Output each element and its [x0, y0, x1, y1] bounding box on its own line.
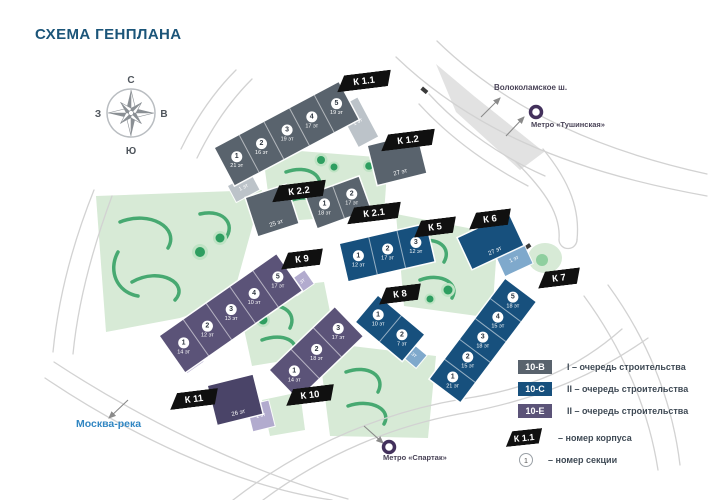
annex-floors-label: 1 эт [238, 183, 249, 193]
legend: 10-В I – очередь строительства 10-С II –… [505, 360, 688, 475]
section-number-badge: 3 [333, 323, 344, 334]
section-number-badge: 4 [492, 311, 503, 322]
section-number-badge: 4 [306, 111, 317, 122]
highway-label: Волоколамское ш. [494, 83, 567, 92]
section-number-badge: 1 [447, 372, 458, 383]
legend-text-phase3: II – очередь строительства [567, 406, 688, 416]
section-floors-label: 12 эт [201, 333, 214, 339]
section-floors-label: 16 эт [255, 150, 268, 156]
section-number-badge: 1 [289, 365, 300, 376]
section-floors-label: 19 эт [280, 137, 293, 143]
legend-row-section: 1 – номер секции [505, 453, 688, 467]
section-number-badge: 2 [396, 329, 407, 340]
section-number-badge: 1 [373, 309, 384, 320]
compass-west-label: З [95, 109, 101, 120]
section-number-badge: 1 [319, 198, 330, 209]
section-floors-label: 18 эт [476, 344, 489, 350]
legend-text-phase2: II – очередь строительства [567, 384, 688, 394]
section-floors-label: 18 эт [318, 210, 331, 216]
section-floors-label: 15 эт [461, 364, 474, 370]
compass-north-label: С [127, 75, 134, 86]
legend-korpus-tag: К 1.1 [504, 428, 543, 447]
section-floors-label: 10 эт [372, 321, 385, 327]
section-number-badge: 3 [281, 125, 292, 136]
genplan-scheme: С Ю З В СХЕМА ГЕНПЛАНА Волоколамское ш. … [0, 0, 708, 500]
legend-section-text: – номер секции [548, 455, 617, 465]
section-floors-label: 18 эт [507, 303, 520, 309]
section-floors-label: 19 эт [330, 110, 343, 116]
legend-row-korpus: К 1.1 – номер корпуса [505, 430, 688, 445]
section-floors-label: 14 эт [177, 349, 190, 355]
compass-south-label: Ю [126, 146, 136, 157]
legend-korpus-text: – номер корпуса [558, 433, 632, 443]
metro-tushinskaya-icon[interactable] [531, 107, 542, 118]
metro-tushinskaya-label: Метро «Тушинская» [531, 120, 605, 129]
section-number-badge: 1 [353, 250, 364, 261]
section-number-badge: 5 [508, 291, 519, 302]
section-number-badge: 3 [411, 237, 422, 248]
river-label: Москва-река [76, 418, 141, 430]
legend-row-phase3: 10-Е II – очередь строительства [505, 404, 688, 418]
metro-spartak-label: Метро «Спартак» [383, 453, 447, 462]
section-floors-label: 21 эт [446, 384, 459, 390]
section-number-badge: 5 [272, 272, 283, 283]
section-floors-label: 15 эт [492, 323, 505, 329]
building-floors-label: 26 эт [231, 409, 246, 418]
compass-rose: С Ю З В [95, 75, 168, 157]
section-floors-label: 12 эт [410, 249, 423, 255]
section-floors-label: 10 эт [248, 300, 261, 306]
section-floors-label: 7 эт [397, 341, 407, 347]
section-number-badge: 4 [249, 288, 260, 299]
compass-east-label: В [160, 109, 167, 120]
section-floors-label: 14 эт [288, 377, 301, 383]
legend-row-phase2: 10-С II – очередь строительства [505, 382, 688, 396]
section-number-badge: 3 [225, 304, 236, 315]
section-number-badge: 2 [256, 138, 267, 149]
section-number-badge: 2 [462, 352, 473, 363]
legend-text-phase1: I – очередь строительства [567, 362, 686, 372]
section-floors-label: 17 эт [305, 123, 318, 129]
section-floors-label: 17 эт [345, 201, 358, 207]
legend-section-badge: 1 [519, 453, 533, 467]
section-floors-label: 13 эт [224, 316, 237, 322]
section-floors-label: 12 эт [352, 262, 365, 268]
section-floors-label: 17 эт [332, 335, 345, 341]
section-floors-label: 21 эт [230, 163, 243, 169]
section-floors-label: 18 эт [310, 356, 323, 362]
legend-row-phase1: 10-В I – очередь строительства [505, 360, 688, 374]
section-number-badge: 2 [311, 344, 322, 355]
section-number-badge: 2 [202, 321, 213, 332]
section-number-badge: 2 [346, 189, 357, 200]
section-number-badge: 2 [382, 244, 393, 255]
section-number-badge: 3 [477, 332, 488, 343]
legend-swatch-10s: 10-С [518, 382, 552, 396]
metro-spartak-icon[interactable] [384, 442, 395, 453]
car-icon [420, 87, 428, 95]
section-number-badge: 5 [331, 98, 342, 109]
section-floors-label: 17 эт [381, 256, 394, 262]
legend-swatch-10v: 10-В [518, 360, 552, 374]
building-floors-label: 25 эт [269, 219, 284, 229]
section-number-badge: 1 [231, 151, 242, 162]
legend-swatch-10e: 10-Е [518, 404, 552, 418]
section-floors-label: 17 эт [271, 284, 284, 290]
building-floors-label: 27 эт [393, 168, 408, 177]
section-number-badge: 1 [178, 337, 189, 348]
annex-floors-label: 1 эт [509, 255, 520, 265]
building-floors-label: 27 эт [488, 246, 503, 257]
